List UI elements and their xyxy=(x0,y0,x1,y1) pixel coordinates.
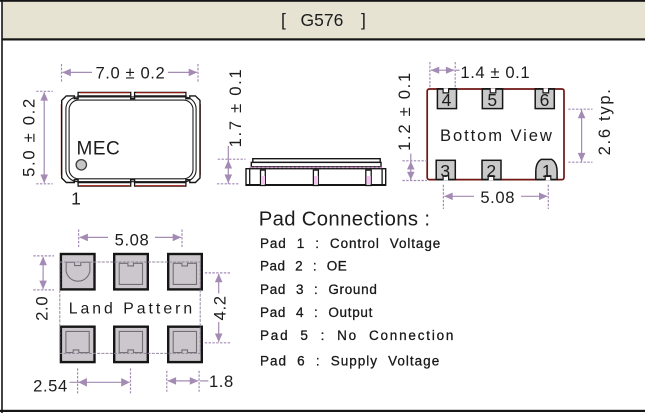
svg-text:1: 1 xyxy=(542,161,552,181)
svg-text:2.54: 2.54 xyxy=(33,376,68,395)
svg-text:2.0: 2.0 xyxy=(32,296,51,321)
svg-text:1.7 ± 0.1: 1.7 ± 0.1 xyxy=(226,68,245,148)
svg-text:5.08: 5.08 xyxy=(115,230,150,249)
svg-text:Pad 3 : Ground: Pad 3 : Ground xyxy=(260,282,378,297)
svg-text:2: 2 xyxy=(486,161,496,181)
svg-text:Pad 1 : Control Voltage: Pad 1 : Control Voltage xyxy=(260,236,441,251)
svg-text:Pad Connections :: Pad Connections : xyxy=(259,209,431,231)
svg-text:MEC: MEC xyxy=(77,139,121,160)
svg-text:1.2 ± 0.1: 1.2 ± 0.1 xyxy=(395,71,414,151)
svg-text:4.2: 4.2 xyxy=(210,295,229,320)
svg-text:7.0 ± 0.2: 7.0 ± 0.2 xyxy=(95,64,165,83)
svg-text:]: ] xyxy=(361,10,366,30)
svg-text:2.6 typ.: 2.6 typ. xyxy=(595,87,614,155)
svg-text:Pad 5 : No Connection: Pad 5 : No Connection xyxy=(260,328,455,343)
svg-text:5.08: 5.08 xyxy=(480,188,515,207)
svg-text:Bottom View: Bottom View xyxy=(440,126,554,145)
svg-text:Pad 4 : Output: Pad 4 : Output xyxy=(260,305,373,320)
svg-text:5.0 ± 0.2: 5.0 ± 0.2 xyxy=(19,97,38,177)
svg-text:3: 3 xyxy=(440,161,450,181)
svg-text:4: 4 xyxy=(442,90,452,110)
svg-text:6: 6 xyxy=(540,90,550,110)
svg-text:[: [ xyxy=(281,10,286,30)
svg-text:G576: G576 xyxy=(301,10,344,30)
svg-text:Land Pattern: Land Pattern xyxy=(69,301,195,318)
svg-text:Pad 6 : Supply Voltage: Pad 6 : Supply Voltage xyxy=(260,353,440,368)
svg-text:1.8: 1.8 xyxy=(209,372,234,391)
svg-text:5: 5 xyxy=(487,90,497,110)
svg-text:1.4 ± 0.1: 1.4 ± 0.1 xyxy=(460,63,530,82)
svg-text:1: 1 xyxy=(71,189,81,209)
svg-text:Pad 2 : OE: Pad 2 : OE xyxy=(260,258,347,273)
